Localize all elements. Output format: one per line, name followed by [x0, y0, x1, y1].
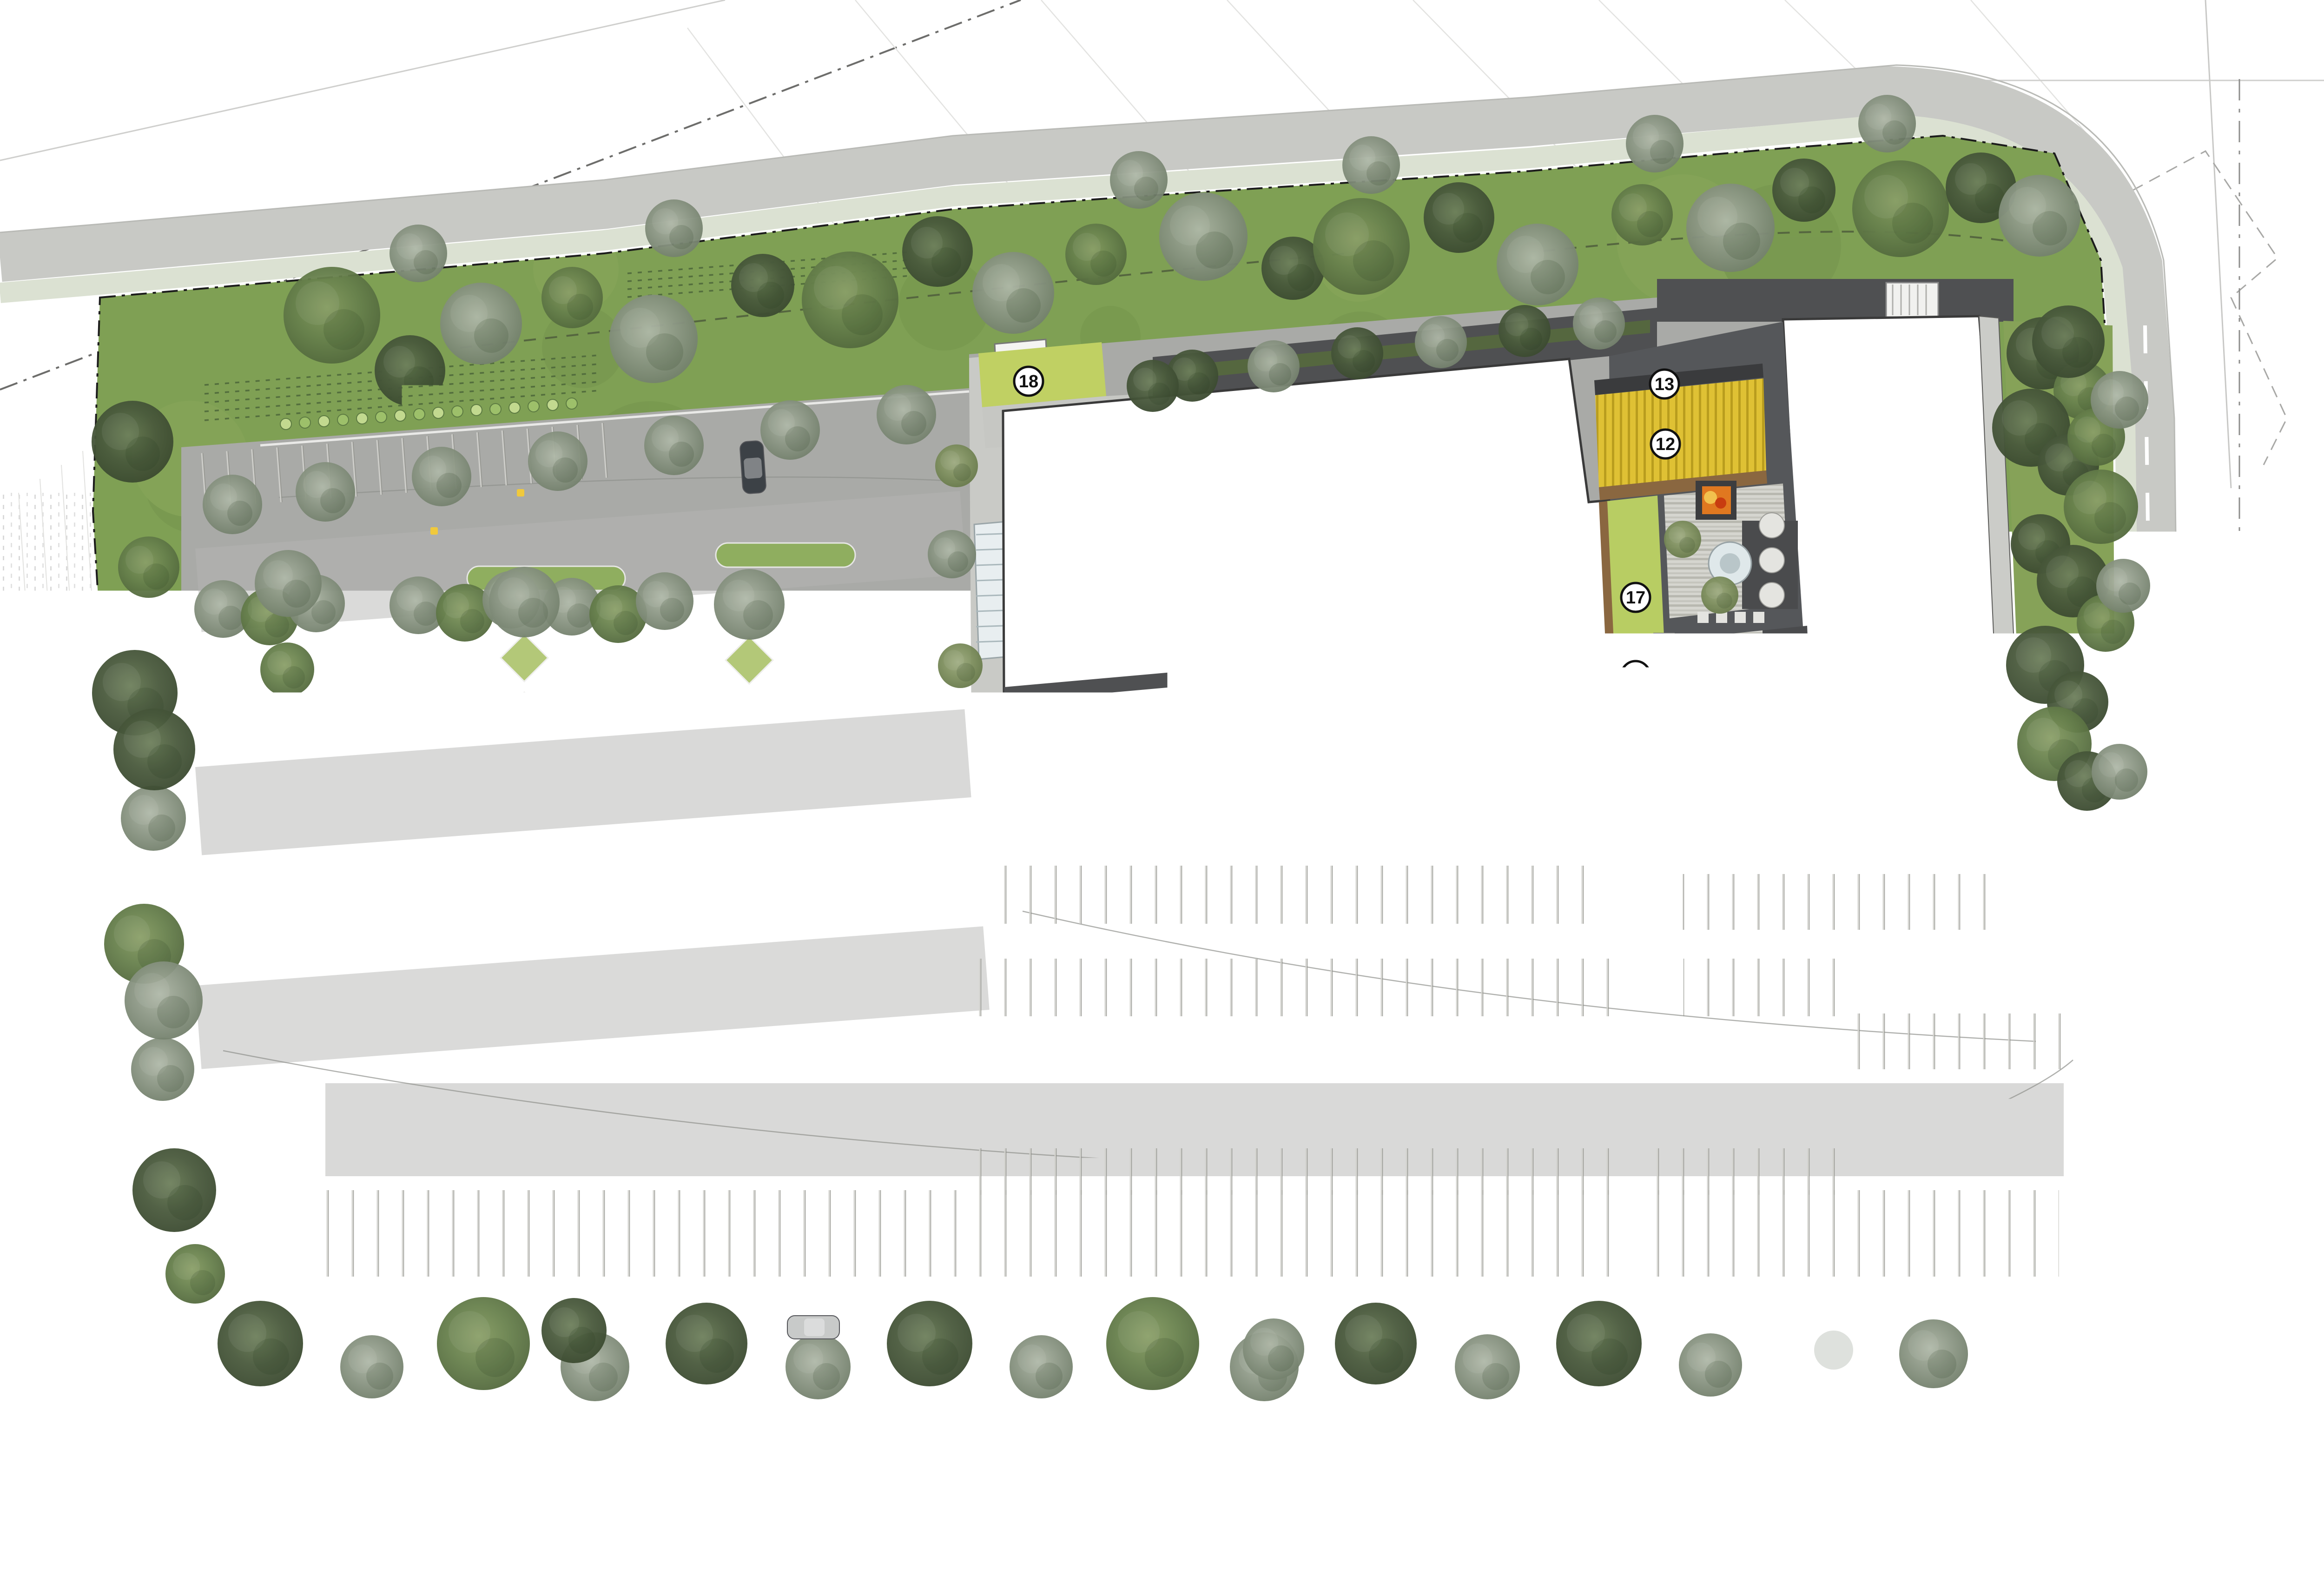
svg-text:2: 2	[1069, 822, 1079, 841]
svg-text:3: 3	[1245, 754, 1254, 773]
svg-text:16: 16	[1640, 959, 1659, 978]
svg-text:15: 15	[1608, 760, 1628, 779]
svg-text:12: 12	[1656, 435, 1675, 454]
svg-text:20: 20	[2028, 1133, 2047, 1152]
svg-text:6: 6	[1441, 759, 1451, 778]
svg-text:9: 9	[1631, 666, 1640, 686]
svg-text:7: 7	[1415, 841, 1425, 861]
svg-text:11: 11	[1769, 693, 1788, 713]
svg-text:LiFT: LiFT	[838, 798, 889, 858]
svg-text:5: 5	[1441, 725, 1451, 744]
svg-text:10: 10	[1690, 693, 1710, 713]
svg-text:14: 14	[1691, 760, 1710, 779]
svg-text:18: 18	[1019, 372, 1038, 391]
svg-text:13: 13	[1655, 375, 1674, 394]
svg-text:4: 4	[1245, 686, 1254, 706]
svg-text:17: 17	[1626, 588, 1645, 608]
svg-text:1: 1	[1070, 752, 1079, 772]
svg-text:LiFT: LiFT	[1224, 947, 1281, 995]
svg-text:19: 19	[2027, 885, 2047, 904]
svg-text:8: 8	[1467, 841, 1477, 861]
